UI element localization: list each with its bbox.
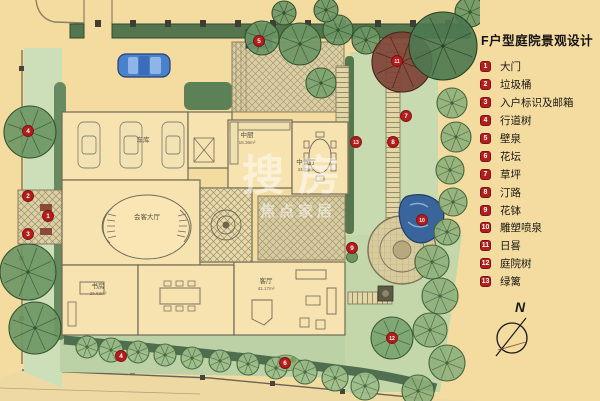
tree-icon [127,341,149,363]
tree-icon [0,244,56,300]
tree-icon [9,302,61,354]
legend-item-label: 行道树 [500,113,532,128]
plan-marker: 7 [401,111,412,122]
tree-icon [154,344,176,366]
plan-marker-number: 6 [283,360,287,367]
plan-marker: 4 [116,351,127,362]
legend-item-label: 入户标识及邮箱 [500,95,574,110]
parked-car [118,54,170,77]
tree-icon [437,88,467,118]
legend-item-label: 花钵 [500,203,521,218]
legend-number-badge: 3 [480,97,491,108]
room-name: 车库 [137,135,151,144]
page-title: F户型庭院景观设计 [481,30,598,49]
legend-number-badge: 5 [480,133,491,144]
tree-icon [409,12,477,80]
screenshot-stage: 车库中厨18.36m²中餐厅34.73m²会客大厅书房26.63m²客厅41.1… [0,0,600,401]
legend-item: 7草坪 [480,165,598,183]
tree-icon [272,1,296,25]
legend-item: 8汀路 [480,183,598,201]
compass: N [488,298,548,368]
plan-marker: 5 [254,36,265,47]
tree-icon [422,278,458,314]
room-label: 会客大厅 [134,212,161,221]
plan-marker: 9 [347,243,358,254]
legend-item: 13绿篱 [480,273,598,291]
legend-item: 4行道树 [480,112,598,130]
legend-item-label: 大门 [500,59,521,74]
legend-items: 1大门2垃圾桶3入户标识及邮箱4行道树5壁泉6花坛7草坪8汀路9花钵10雕塑喷泉… [480,58,598,291]
tree-icon [402,375,434,401]
plan-marker: 11 [392,56,403,67]
plan-marker: 3 [23,229,34,240]
plan-marker-number: 9 [350,245,354,252]
room-label: 中厨18.36m² [239,130,256,145]
legend-item: 3入户标识及邮箱 [480,94,598,112]
tree-icon [76,336,98,358]
watermark-line2: 焦点家居 [259,202,336,220]
plan-marker-number: 1 [46,213,50,220]
plan-marker-number: 4 [119,353,123,360]
plan-marker: 6 [280,358,291,369]
tree-icon [429,345,465,381]
legend-number-badge: 9 [480,205,491,216]
tree-icon [439,188,467,216]
tree-icon [237,353,259,375]
legend-number-badge: 1 [480,61,491,72]
plan-marker-number: 4 [26,128,30,135]
tree-icon [441,122,471,152]
plan-marker: 10 [417,215,428,226]
plan-marker-number: 13 [353,140,359,146]
plan-marker-number: 2 [26,193,30,200]
compass-north-label: N [515,299,526,315]
plan-marker-number: 10 [419,218,425,224]
legend-number-badge: 10 [480,222,491,233]
legend-number-badge: 4 [480,115,491,126]
plan-marker: 8 [388,137,399,148]
plan-marker: 12 [387,333,398,344]
plan-marker: 13 [351,137,362,148]
legend-number-badge: 7 [480,169,491,180]
tree-icon [279,23,321,65]
tree-icon [351,372,379,400]
tree-icon [436,156,464,184]
legend-item-label: 汀路 [500,185,521,200]
room-area: 41.17m² [258,286,275,291]
legend-number-badge: 6 [480,151,491,162]
room-label: 客厅41.17m² [258,276,275,291]
legend-item-label: 花坛 [500,149,521,164]
tree-icon [415,245,449,279]
tree-icon [209,350,231,372]
legend-item: 11日晷 [480,237,598,255]
room-name: 客厅 [260,276,274,285]
room-name: 中厨 [241,130,255,139]
plan-marker-number: 3 [26,231,30,238]
plan-marker: 4 [23,126,34,137]
legend-item-label: 日晷 [500,238,521,253]
watermark-line1: 搜房 [242,152,354,199]
room-label: 书房26.63m² [90,281,107,296]
tree-icon [413,313,447,347]
tree-icon [322,365,348,391]
legend-item: 2垃圾桶 [480,76,598,94]
plan-marker: 1 [43,211,54,222]
legend-number-badge: 11 [480,240,491,251]
tree-icon [181,347,203,369]
legend-number-badge: 8 [480,187,491,198]
plan-marker-number: 11 [394,59,400,65]
plan-marker-number: 5 [257,38,261,45]
legend-item-label: 壁泉 [500,131,521,146]
legend-item: 12庭院树 [480,255,598,273]
plan-marker-number: 12 [389,336,395,342]
legend-item-label: 绿篱 [500,274,521,289]
legend-item-label: 雕塑喷泉 [500,220,542,235]
legend-item: 1大门 [480,58,598,76]
tree-icon [434,219,460,245]
legend-item-label: 垃圾桶 [500,77,532,92]
legend-item: 6花坛 [480,147,598,165]
legend-item-label: 庭院树 [500,256,532,271]
tree-icon [306,68,336,98]
legend-number-badge: 12 [480,258,491,269]
legend-item: 9花钵 [480,201,598,219]
legend-number-badge: 2 [480,79,491,90]
room-area: 26.63m² [90,291,107,296]
plan-marker-number: 7 [404,113,408,120]
legend-number-badge: 13 [480,276,491,287]
tree-icon [314,0,338,22]
room-name: 书房 [92,281,105,290]
room-area: 18.36m² [239,140,256,145]
site-plan: 车库中厨18.36m²中餐厅34.73m²会客大厅书房26.63m²客厅41.1… [0,0,480,401]
room-label: 车库 [137,135,151,144]
legend-panel: F户型庭院景观设计 1大门2垃圾桶3入户标识及邮箱4行道树5壁泉6花坛7草坪8汀… [480,30,598,291]
legend-item: 5壁泉 [480,130,598,148]
legend-item: 10雕塑喷泉 [480,219,598,237]
plan-marker-number: 8 [391,139,395,146]
plan-marker: 2 [23,191,34,202]
tree-icon [293,360,317,384]
legend-item-label: 草坪 [500,167,521,182]
room-name: 会客大厅 [134,212,161,221]
